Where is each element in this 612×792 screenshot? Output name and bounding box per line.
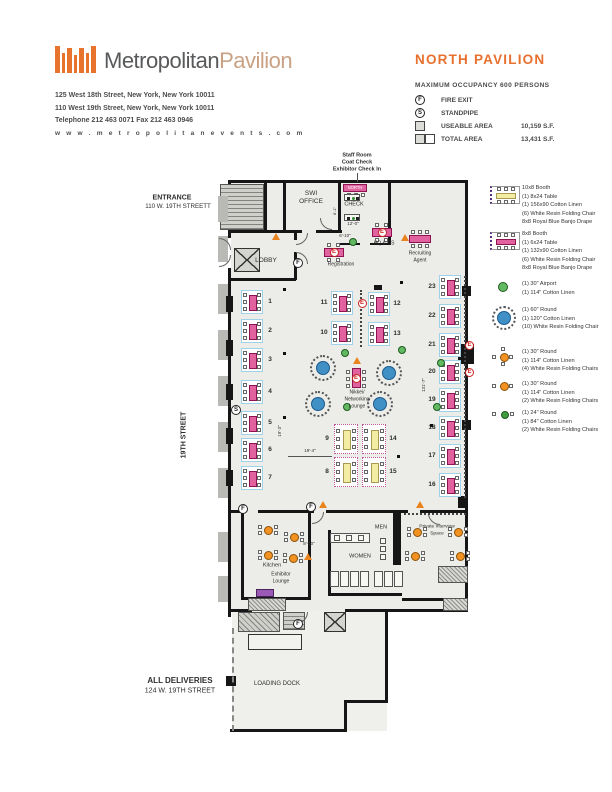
nikkei-label-1: Nikkei/ [349, 391, 364, 396]
recruiting-label-2: Agent [413, 259, 426, 264]
chair-icon [441, 490, 445, 494]
chair-icon [258, 556, 262, 560]
booth-number-10: 10 [320, 330, 327, 337]
chair-icon [258, 531, 262, 535]
chair-icon [333, 338, 337, 342]
loading-ramp [248, 634, 302, 650]
booth-table [447, 309, 455, 325]
chair-icon [243, 428, 247, 432]
booth-table [339, 326, 347, 342]
chair-icon [243, 300, 247, 304]
toilet-stall [350, 571, 359, 587]
chair-icon [441, 350, 445, 354]
floor-plan-page: { "header": { "brand_primary": "Metropol… [0, 0, 612, 792]
staff-room-note-1: Staff Room [342, 153, 371, 159]
chair-icon [347, 294, 351, 298]
booth-number-5: 5 [268, 420, 272, 427]
chair-icon [455, 398, 459, 402]
entrance-label-2: 110 W. 19TH STREETT [145, 204, 211, 210]
service-counter [256, 589, 274, 597]
wall-segment [328, 593, 402, 596]
chair-icon [364, 470, 368, 474]
chair-mark [347, 197, 350, 200]
fire-exit-marker: F [306, 502, 316, 512]
check-desk [344, 194, 360, 201]
drape-line [464, 276, 466, 498]
chair-icon [455, 426, 459, 430]
chair-icon [370, 325, 374, 329]
chair-icon [380, 470, 384, 474]
booth-22 [439, 304, 461, 328]
booth-table [376, 297, 384, 313]
wall-segment [258, 510, 314, 513]
chair-icon [336, 462, 340, 466]
booth-number-22: 22 [428, 313, 435, 320]
chair-icon [243, 383, 247, 387]
chair-icon [441, 292, 445, 296]
hazard-triangle-marker [353, 357, 361, 364]
chair-icon [455, 476, 459, 480]
chair-icon [441, 314, 445, 318]
chair-icon [441, 391, 445, 395]
chair-icon [455, 292, 459, 296]
chair-icon [423, 533, 427, 537]
round-table-30 [290, 533, 299, 542]
booth-table [249, 385, 257, 401]
recruiting-table [409, 235, 431, 243]
chair-icon [362, 384, 366, 388]
booth-number-3: 3 [268, 357, 272, 364]
chair-icon [405, 551, 409, 555]
chair-icon [333, 308, 337, 312]
exterior-wall-block [218, 532, 228, 562]
exhibitor-lounge-label-2: Lounge [273, 580, 290, 585]
chair-icon [257, 358, 261, 362]
chair-icon [455, 336, 459, 340]
column-dot [397, 455, 400, 458]
chair-icon [384, 302, 388, 306]
deliveries-label-1: ALL DELIVERIES [147, 677, 212, 685]
booth-15 [362, 457, 386, 487]
booth-table [376, 327, 384, 343]
chair-icon [336, 470, 340, 474]
chair-icon [455, 419, 459, 423]
chair-icon [257, 390, 261, 394]
toilet-stall [374, 571, 383, 587]
round-table-30 [264, 551, 273, 560]
staff-room-note-3: Exhibitor Check In [333, 167, 381, 173]
hatched-wall [438, 566, 468, 583]
chair-icon [380, 462, 384, 466]
chair-icon [257, 365, 261, 369]
chair-icon [466, 557, 470, 561]
loading-dock-label: LOADING DOCK [254, 681, 300, 687]
chair-icon [274, 550, 278, 554]
registration-label: Registration [328, 263, 355, 268]
round-table-30 [411, 552, 420, 561]
column-dot [283, 352, 286, 355]
round-table-30 [289, 554, 298, 563]
booth-14 [362, 424, 386, 454]
dim-19-4: 19'-4" [304, 449, 315, 454]
chair-icon [333, 301, 337, 305]
chair-icon [243, 441, 247, 445]
chair-icon [455, 391, 459, 395]
round-table-60-top [373, 397, 387, 411]
chair-icon [274, 525, 278, 529]
booth-table [447, 421, 455, 437]
chair-icon [243, 351, 247, 355]
sink [358, 535, 364, 541]
leader-line [357, 173, 358, 182]
chair-icon [300, 532, 304, 536]
chair-icon [370, 309, 374, 313]
chair-icon [455, 307, 459, 311]
chair-icon [346, 377, 350, 381]
booth-3 [241, 348, 263, 372]
chair-icon [243, 365, 247, 369]
wall-column [374, 285, 382, 290]
chair-icon [450, 551, 454, 555]
chair-icon [441, 419, 445, 423]
chair-icon [243, 414, 247, 418]
north-desk-label: NORTH [348, 186, 363, 190]
recruiting-label-1: Recruiting [409, 252, 432, 257]
chair-icon [441, 307, 445, 311]
booth-5 [241, 411, 263, 435]
exterior-wall-block [218, 576, 228, 602]
airport-mark [352, 197, 355, 200]
chair-icon [352, 437, 356, 441]
booth-1 [241, 290, 263, 314]
wall-column [226, 384, 233, 400]
chair-icon [455, 461, 459, 465]
chair-icon [257, 307, 261, 311]
airport-table-30 [341, 349, 349, 357]
chair-icon [257, 383, 261, 387]
fire-exit-marker: F [238, 504, 248, 514]
chair-icon [466, 551, 470, 555]
booth-10 [331, 321, 353, 345]
chair-icon [243, 455, 247, 459]
booth-2 [241, 319, 263, 343]
booth-table [371, 430, 379, 450]
sink [346, 535, 352, 541]
chair-icon [243, 307, 247, 311]
booth-7 [241, 466, 263, 490]
booth-number-13: 13 [393, 331, 400, 338]
chair-icon [455, 490, 459, 494]
booth-table [249, 416, 257, 432]
chair-icon [441, 483, 445, 487]
column-dot [430, 424, 433, 427]
booth-9 [334, 424, 358, 454]
dimension-line [288, 456, 332, 457]
toilet [380, 538, 386, 544]
chair-icon [441, 285, 445, 289]
chair-icon [455, 447, 459, 451]
chair-icon [441, 321, 445, 325]
booth-number-2: 2 [268, 328, 272, 335]
round-table-60-top [316, 361, 330, 375]
chair-icon [336, 437, 340, 441]
chair-icon [336, 429, 340, 433]
chair-icon [257, 351, 261, 355]
chair-icon [421, 557, 425, 561]
booth-8 [334, 457, 358, 487]
toilet-stall [360, 571, 369, 587]
chair-icon [411, 230, 415, 234]
chair-icon [257, 469, 261, 473]
booth-number-17: 17 [428, 453, 435, 460]
wall-segment [241, 512, 244, 600]
chair-icon [283, 559, 287, 563]
chair-icon [375, 223, 379, 227]
booth-number-11: 11 [321, 300, 328, 307]
booth-17 [439, 444, 461, 468]
chair-icon [243, 336, 247, 340]
chair-icon [441, 461, 445, 465]
standpipe-marker: S [231, 405, 241, 415]
chair-icon [327, 243, 331, 247]
chair-icon [284, 532, 288, 536]
chair-icon [243, 390, 247, 394]
nikkei-label-3: Lounge [349, 405, 366, 410]
chair-icon [418, 230, 422, 234]
booth-number-8: 8 [325, 469, 329, 476]
chair-icon [384, 339, 388, 343]
chair-icon [441, 433, 445, 437]
chair-icon [370, 339, 374, 343]
chair-icon [455, 343, 459, 347]
chair-icon [257, 448, 261, 452]
chair-icon [441, 447, 445, 451]
chair-icon [336, 243, 340, 247]
chair-icon [362, 370, 366, 374]
booth-table [249, 471, 257, 487]
chair-mark [356, 197, 359, 200]
dim-19-3: 19'-3" [278, 425, 283, 436]
chair-icon [352, 445, 356, 449]
hazard-triangle-marker [416, 501, 424, 508]
chair-icon [455, 454, 459, 458]
hatched-wall [443, 598, 468, 611]
chair-icon [333, 324, 337, 328]
chair-icon [352, 429, 356, 433]
airport-table-30 [437, 359, 445, 367]
booth-table [249, 295, 257, 311]
column-dot [283, 416, 286, 419]
wall-segment [393, 512, 401, 565]
chair-icon [243, 483, 247, 487]
exhibitor-lounge-label-1: Exhibitor [271, 573, 290, 578]
chair-icon [299, 553, 303, 557]
chair-icon [455, 350, 459, 354]
hazard-triangle-marker [272, 233, 280, 240]
airport-mark [352, 217, 355, 220]
chair-icon [425, 244, 429, 248]
chair-icon [380, 429, 384, 433]
chair-icon [243, 329, 247, 333]
chair-icon [441, 398, 445, 402]
chair-mark [347, 217, 350, 220]
chair-icon [283, 553, 287, 557]
chair-icon [243, 476, 247, 480]
booth-number-12: 12 [393, 301, 400, 308]
booth-number-16: 16 [428, 482, 435, 489]
round-table-30 [456, 552, 465, 561]
chair-icon [370, 332, 374, 336]
chair-icon [441, 426, 445, 430]
booth-6 [241, 438, 263, 462]
chair-icon [347, 308, 351, 312]
chair-icon [362, 377, 366, 381]
chair-icon [364, 478, 368, 482]
floor-plan: 123456711121013232221E20E19181716914815E… [0, 0, 612, 792]
round-table-30 [264, 526, 273, 535]
booth-table [249, 353, 257, 369]
chair-icon [455, 377, 459, 381]
chair-icon [441, 278, 445, 282]
toilet-stall [340, 571, 349, 587]
dim-12-0: 12'-0" [347, 222, 358, 227]
chair-icon [450, 557, 454, 561]
chair-icon [347, 331, 351, 335]
exhibitor-e-marker: E [465, 341, 474, 350]
chair-icon [257, 300, 261, 304]
lobby-label: LOBBY [255, 258, 277, 265]
dim-131-7: 131'-7" [422, 378, 427, 392]
chair-icon [352, 462, 356, 466]
drape-line [404, 513, 466, 515]
elevator-shaft-south [324, 612, 346, 632]
column-dot [283, 288, 286, 291]
chair-icon [441, 336, 445, 340]
toilet-stall [394, 571, 403, 587]
chair-icon [299, 559, 303, 563]
chair-icon [257, 293, 261, 297]
private-interview-label-1: Private Interview [419, 526, 454, 531]
airport-table-30 [349, 238, 357, 246]
booth-18 [439, 416, 461, 440]
booth-number-6: 6 [268, 447, 272, 454]
chair-icon [441, 405, 445, 409]
chair-icon [455, 405, 459, 409]
round-table-30 [454, 528, 463, 537]
chair-icon [258, 525, 262, 529]
chair-icon [333, 331, 337, 335]
booth-number-23: 23 [428, 284, 435, 291]
booth-13 [368, 322, 390, 346]
deliveries-label-2: 124 W. 19TH STREET [145, 688, 215, 695]
chair-icon [347, 301, 351, 305]
chair-icon [384, 332, 388, 336]
chair-icon [448, 533, 452, 537]
chair-icon [405, 557, 409, 561]
chair-icon [361, 193, 365, 197]
chair-icon [455, 433, 459, 437]
booth-number-20: 20 [428, 369, 435, 376]
men-label: MEN [375, 525, 387, 531]
wall-column [226, 676, 236, 686]
wall-segment [283, 183, 286, 232]
exhibitor-e-marker: E [330, 248, 339, 257]
wall-segment [385, 612, 388, 703]
chair-icon [364, 445, 368, 449]
hazard-triangle-marker [319, 501, 327, 508]
chair-icon [370, 302, 374, 306]
chair-icon [336, 445, 340, 449]
booth-23 [439, 275, 461, 299]
booth-table [447, 478, 455, 494]
chair-icon [384, 309, 388, 313]
swi-office-label-2: OFFICE [299, 199, 323, 206]
airport-table-30 [398, 346, 406, 354]
chair-icon [346, 384, 350, 388]
booth-number-4: 4 [268, 389, 272, 396]
sink [334, 535, 340, 541]
chair-icon [346, 370, 350, 374]
chair-icon [407, 533, 411, 537]
lease-line-dashed [232, 628, 234, 731]
chair-icon [347, 338, 351, 342]
chair-icon [380, 445, 384, 449]
fire-exit-marker: F [293, 619, 303, 629]
booth-number-9: 9 [325, 436, 329, 443]
chair-icon [455, 285, 459, 289]
wall-segment [264, 183, 267, 232]
chair-icon [455, 278, 459, 282]
chair-icon [243, 397, 247, 401]
chair-icon [257, 397, 261, 401]
dim-6-10: 6'-10" [339, 234, 350, 239]
booth-19 [439, 388, 461, 412]
dim-8-10: 8'-10" [303, 542, 314, 547]
chair-icon [441, 476, 445, 480]
chair-mark [356, 217, 359, 220]
booth-16 [439, 473, 461, 497]
street-label: 19TH STREET [181, 412, 188, 459]
chair-icon [421, 551, 425, 555]
wall-column [226, 340, 233, 356]
chair-icon [284, 538, 288, 542]
booth-table [447, 449, 455, 465]
booth-number-15: 15 [389, 469, 396, 476]
wall-segment [316, 230, 342, 233]
wall-segment [230, 729, 347, 732]
chair-icon [336, 478, 340, 482]
chair-icon [407, 527, 411, 531]
chair-icon [257, 483, 261, 487]
nikkei-label-2: Networking [344, 398, 369, 403]
toilet [380, 554, 386, 560]
dim-8-1: 8'-1" [333, 207, 337, 215]
booth-table [447, 280, 455, 296]
chair-icon [257, 476, 261, 480]
chair-icon [274, 556, 278, 560]
chair-icon [364, 462, 368, 466]
hazard-triangle-marker [304, 553, 312, 560]
chair-icon [455, 483, 459, 487]
chair-icon [257, 322, 261, 326]
column-dot [400, 281, 403, 284]
private-interview-label-2: Space [430, 533, 444, 538]
chair-icon [455, 321, 459, 325]
chair-icon [257, 441, 261, 445]
exhibitor-e-marker: E [358, 299, 367, 308]
chair-icon [364, 437, 368, 441]
exterior-wall-block [218, 196, 228, 222]
